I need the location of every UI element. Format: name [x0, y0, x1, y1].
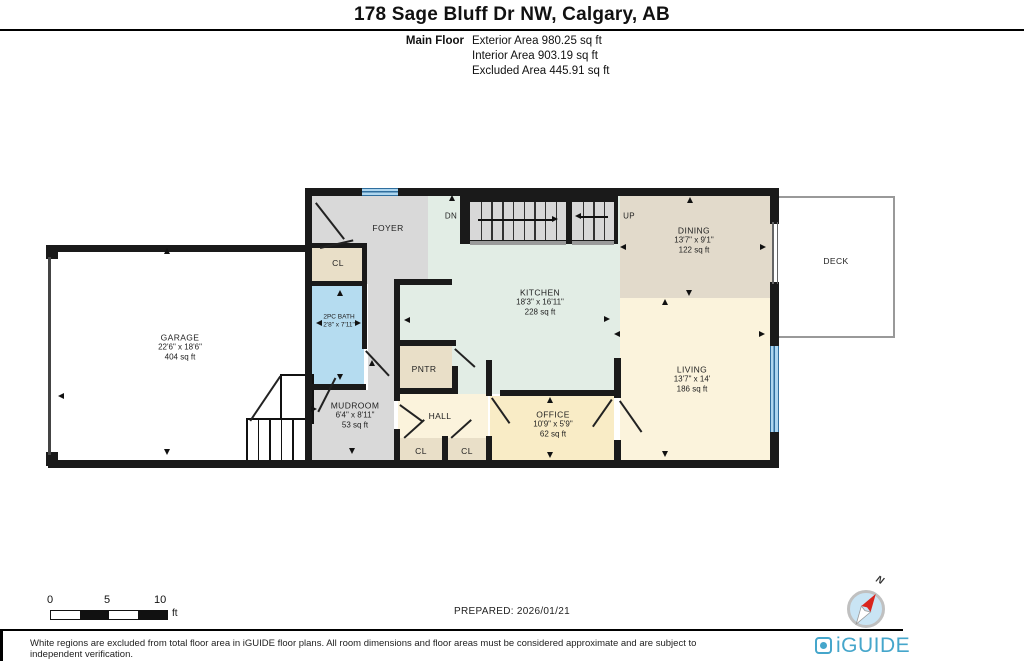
- stair-tread-line: [583, 202, 585, 240]
- house-right-wall-a: [770, 188, 779, 224]
- dimension-arrow-icon: [337, 374, 343, 380]
- deck-door-line: [777, 222, 779, 284]
- dimension-arrow-icon: [355, 320, 361, 326]
- garage-door-line: [48, 257, 51, 455]
- stairs-up-edge: [572, 241, 614, 245]
- dimension-arrow-icon: [687, 197, 693, 203]
- header-divider: [0, 29, 1024, 31]
- stair-tread-line: [481, 202, 483, 240]
- summary-row: Excluded Area 445.91 sq ft: [338, 64, 609, 79]
- closet-divider-wall: [442, 436, 448, 462]
- pantry-top-wall: [394, 340, 456, 346]
- dimension-arrow-icon: [604, 316, 610, 322]
- bath-bottom-wall: [308, 384, 366, 390]
- foyer-closet-bottom-wall: [308, 281, 366, 286]
- scale-segment: [51, 611, 80, 619]
- living-stub-wall: [614, 358, 621, 398]
- stair-tread-line: [281, 420, 283, 462]
- stair-tread-line: [269, 420, 271, 462]
- scale-bar-strip: [50, 610, 168, 620]
- page-edge-mark: [0, 629, 3, 661]
- closet2-right-wall: [486, 436, 492, 462]
- deck-area: [779, 196, 895, 338]
- room-label-hall-closet-1: CL: [415, 446, 427, 456]
- stairs-down-arrow-head: [552, 216, 558, 222]
- garage-stairs: [246, 418, 308, 466]
- stairs-up-arrow-line: [580, 216, 608, 218]
- stair-tread-line: [292, 420, 294, 462]
- window-top: [362, 188, 398, 196]
- room-label-living: LIVING 13'7" x 14' 186 sq ft: [674, 365, 711, 394]
- corridor-wall-lower: [394, 429, 400, 468]
- iguide-logo-text: iGUIDE: [836, 635, 910, 656]
- bath-right-wall: [362, 243, 367, 349]
- house-left-wall: [305, 188, 312, 468]
- scale-bar: 0 5 10 ft: [44, 594, 234, 624]
- kitchen-sw-wall: [394, 279, 452, 285]
- stairs-down-label: DN: [445, 212, 457, 221]
- dimension-arrow-icon: [369, 360, 375, 366]
- scale-tick-0: 0: [47, 594, 53, 606]
- summary-row: Interior Area 903.19 sq ft: [338, 49, 609, 64]
- stair-tread-line: [524, 202, 526, 240]
- room-label-pantry: PNTR: [412, 364, 437, 374]
- room-label-garage: GARAGE 22'6" x 18'6" 404 sq ft: [158, 333, 202, 362]
- stair-tread-line: [534, 202, 536, 240]
- stairs-up-arrow-head: [575, 213, 581, 219]
- dimension-arrow-icon: [614, 331, 620, 337]
- footer-divider: [0, 629, 903, 631]
- deck-door-line: [772, 222, 774, 284]
- dimension-arrow-icon: [547, 452, 553, 458]
- stairs-down-edge: [470, 241, 566, 245]
- dimension-arrow-icon: [311, 406, 317, 412]
- dimension-arrow-icon: [58, 393, 64, 399]
- disclaimer-text: White regions are excluded from total fl…: [30, 638, 730, 660]
- dimension-arrow-icon: [164, 449, 170, 455]
- dimension-arrow-icon: [349, 448, 355, 454]
- dimension-arrow-icon: [662, 451, 668, 457]
- room-label-hall-closet-2: CL: [461, 446, 473, 456]
- summary-row: Main Floor Exterior Area 980.25 sq ft: [338, 34, 609, 49]
- house-right-wall-b: [770, 282, 779, 346]
- room-label-dining: DINING 13'7" x 9'1" 122 sq ft: [674, 226, 713, 255]
- floor-summary: Main Floor Exterior Area 980.25 sq ft In…: [338, 34, 609, 79]
- scale-tick-10: 10: [154, 594, 166, 606]
- dimension-arrow-icon: [316, 320, 322, 326]
- room-label-office: OFFICE 10'9" x 5'9" 62 sq ft: [533, 410, 572, 439]
- bath-floor: [312, 286, 364, 386]
- stair-tread-line: [491, 202, 493, 240]
- room-label-mudroom: MUDROOM 6'4" x 8'11" 53 sq ft: [331, 401, 380, 430]
- stair-tread-line: [258, 420, 260, 462]
- iguide-logo-icon: [815, 637, 832, 654]
- dimension-arrow-icon: [404, 317, 410, 323]
- scale-segment: [80, 611, 109, 619]
- floor-name-label: Main Floor: [338, 34, 464, 49]
- page-title: 178 Sage Bluff Dr NW, Calgary, AB: [0, 4, 1024, 26]
- dimension-arrow-icon: [620, 244, 626, 250]
- stairs-up-label: UP: [623, 212, 635, 221]
- room-label-hall: HALL: [429, 411, 452, 421]
- house-right-wall-c: [770, 430, 779, 468]
- kitchen-se-stub-wall: [486, 360, 492, 396]
- stair-tread-line: [604, 202, 606, 240]
- iguide-logo: iGUIDE: [815, 635, 910, 656]
- window-right: [770, 346, 779, 432]
- dimension-arrow-icon: [449, 195, 455, 201]
- exterior-area-value: Exterior Area 980.25 sq ft: [472, 34, 602, 49]
- scale-segment: [138, 611, 167, 619]
- garage-top-wall: [48, 245, 312, 252]
- spacer: [338, 49, 464, 64]
- dimension-arrow-icon: [760, 244, 766, 250]
- dimension-arrow-icon: [337, 290, 343, 296]
- room-label-deck: DECK: [823, 256, 848, 266]
- office-right-wall: [614, 440, 621, 468]
- room-label-foyer-closet: CL: [332, 258, 344, 268]
- room-label-kitchen: KITCHEN 18'3" x 16'11" 228 sq ft: [516, 288, 564, 317]
- bottom-wall: [48, 460, 777, 468]
- spacer: [338, 64, 464, 79]
- prepared-date: PREPARED: 2026/01/21: [380, 606, 644, 617]
- scale-unit-label: ft: [172, 608, 178, 619]
- room-label-foyer: FOYER: [372, 223, 403, 233]
- dimension-arrow-icon: [547, 397, 553, 403]
- pantry-bottom-wall: [394, 388, 458, 394]
- dimension-arrow-icon: [686, 290, 692, 296]
- dimension-arrow-icon: [759, 331, 765, 337]
- scale-tick-5: 5: [104, 594, 110, 606]
- dimension-arrow-icon: [164, 248, 170, 254]
- stair-tread-line: [545, 202, 547, 240]
- interior-area-value: Interior Area 903.19 sq ft: [472, 49, 598, 64]
- scale-segment: [109, 611, 138, 619]
- excluded-area-value: Excluded Area 445.91 sq ft: [472, 64, 609, 79]
- room-label-bath: 2PC BATH 2'8" x 7'11": [323, 314, 355, 329]
- stair-tread-line: [502, 202, 504, 240]
- stairs-down-arrow-line: [478, 219, 554, 221]
- office-top-wall: [500, 390, 616, 396]
- dimension-arrow-icon: [662, 299, 668, 305]
- stair-tread-line: [513, 202, 515, 240]
- stair-tread-line: [593, 202, 595, 240]
